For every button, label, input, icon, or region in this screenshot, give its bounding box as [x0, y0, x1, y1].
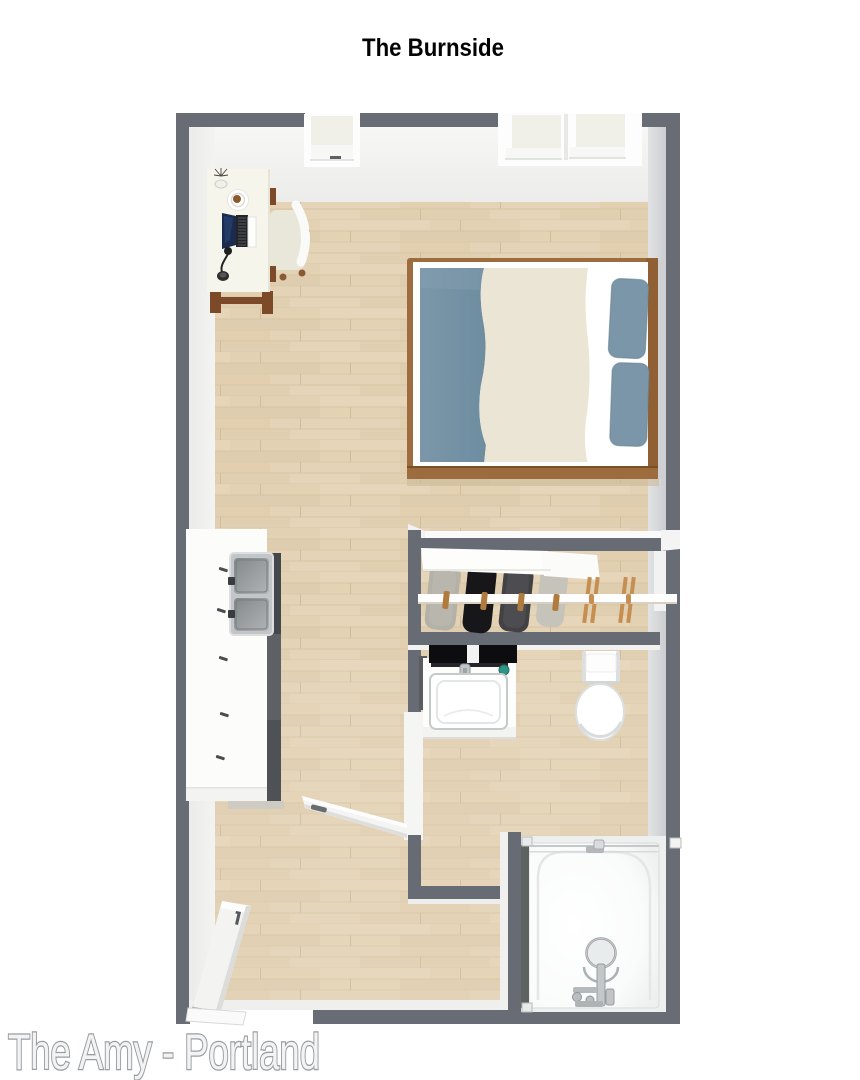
svg-text:The Amy - Portland: The Amy - Portland [8, 1024, 320, 1080]
svg-text:The Burnside: The Burnside [362, 34, 504, 62]
